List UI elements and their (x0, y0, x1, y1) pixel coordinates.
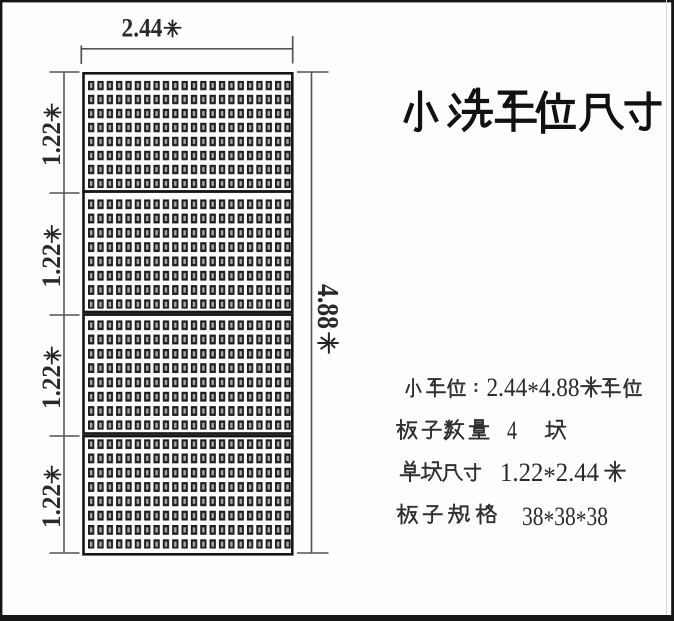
svg-text:4.88: 4.88 (311, 284, 346, 329)
svg-text:1.22*2.44: 1.22*2.44 (500, 458, 599, 491)
svg-text:1.22: 1.22 (37, 244, 66, 288)
svg-text:38*38*38: 38*38*38 (522, 502, 608, 535)
svg-text:2.44*4.88: 2.44*4.88 (487, 373, 580, 406)
svg-text:2.44: 2.44 (122, 14, 163, 43)
svg-text:4: 4 (507, 416, 517, 445)
svg-text:1.22: 1.22 (37, 484, 66, 528)
svg-text:1.22: 1.22 (37, 365, 66, 409)
svg-text:1.22: 1.22 (37, 122, 66, 166)
